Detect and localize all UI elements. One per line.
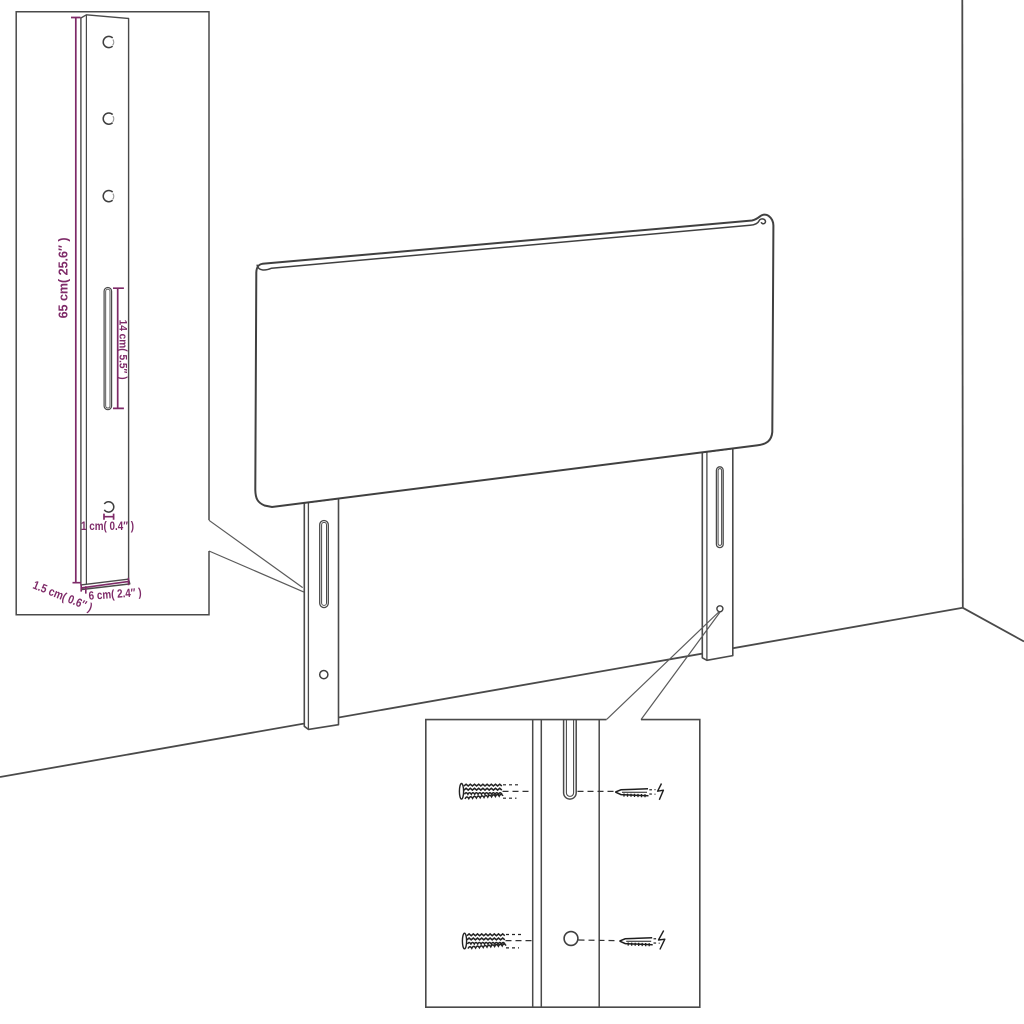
svg-text:65 cm( 25.6″ ): 65 cm( 25.6″ ) <box>56 237 71 318</box>
svg-text:14 cm( 5.5″ ): 14 cm( 5.5″ ) <box>116 320 128 380</box>
svg-text:1 cm( 0.4″ ): 1 cm( 0.4″ ) <box>81 519 134 533</box>
